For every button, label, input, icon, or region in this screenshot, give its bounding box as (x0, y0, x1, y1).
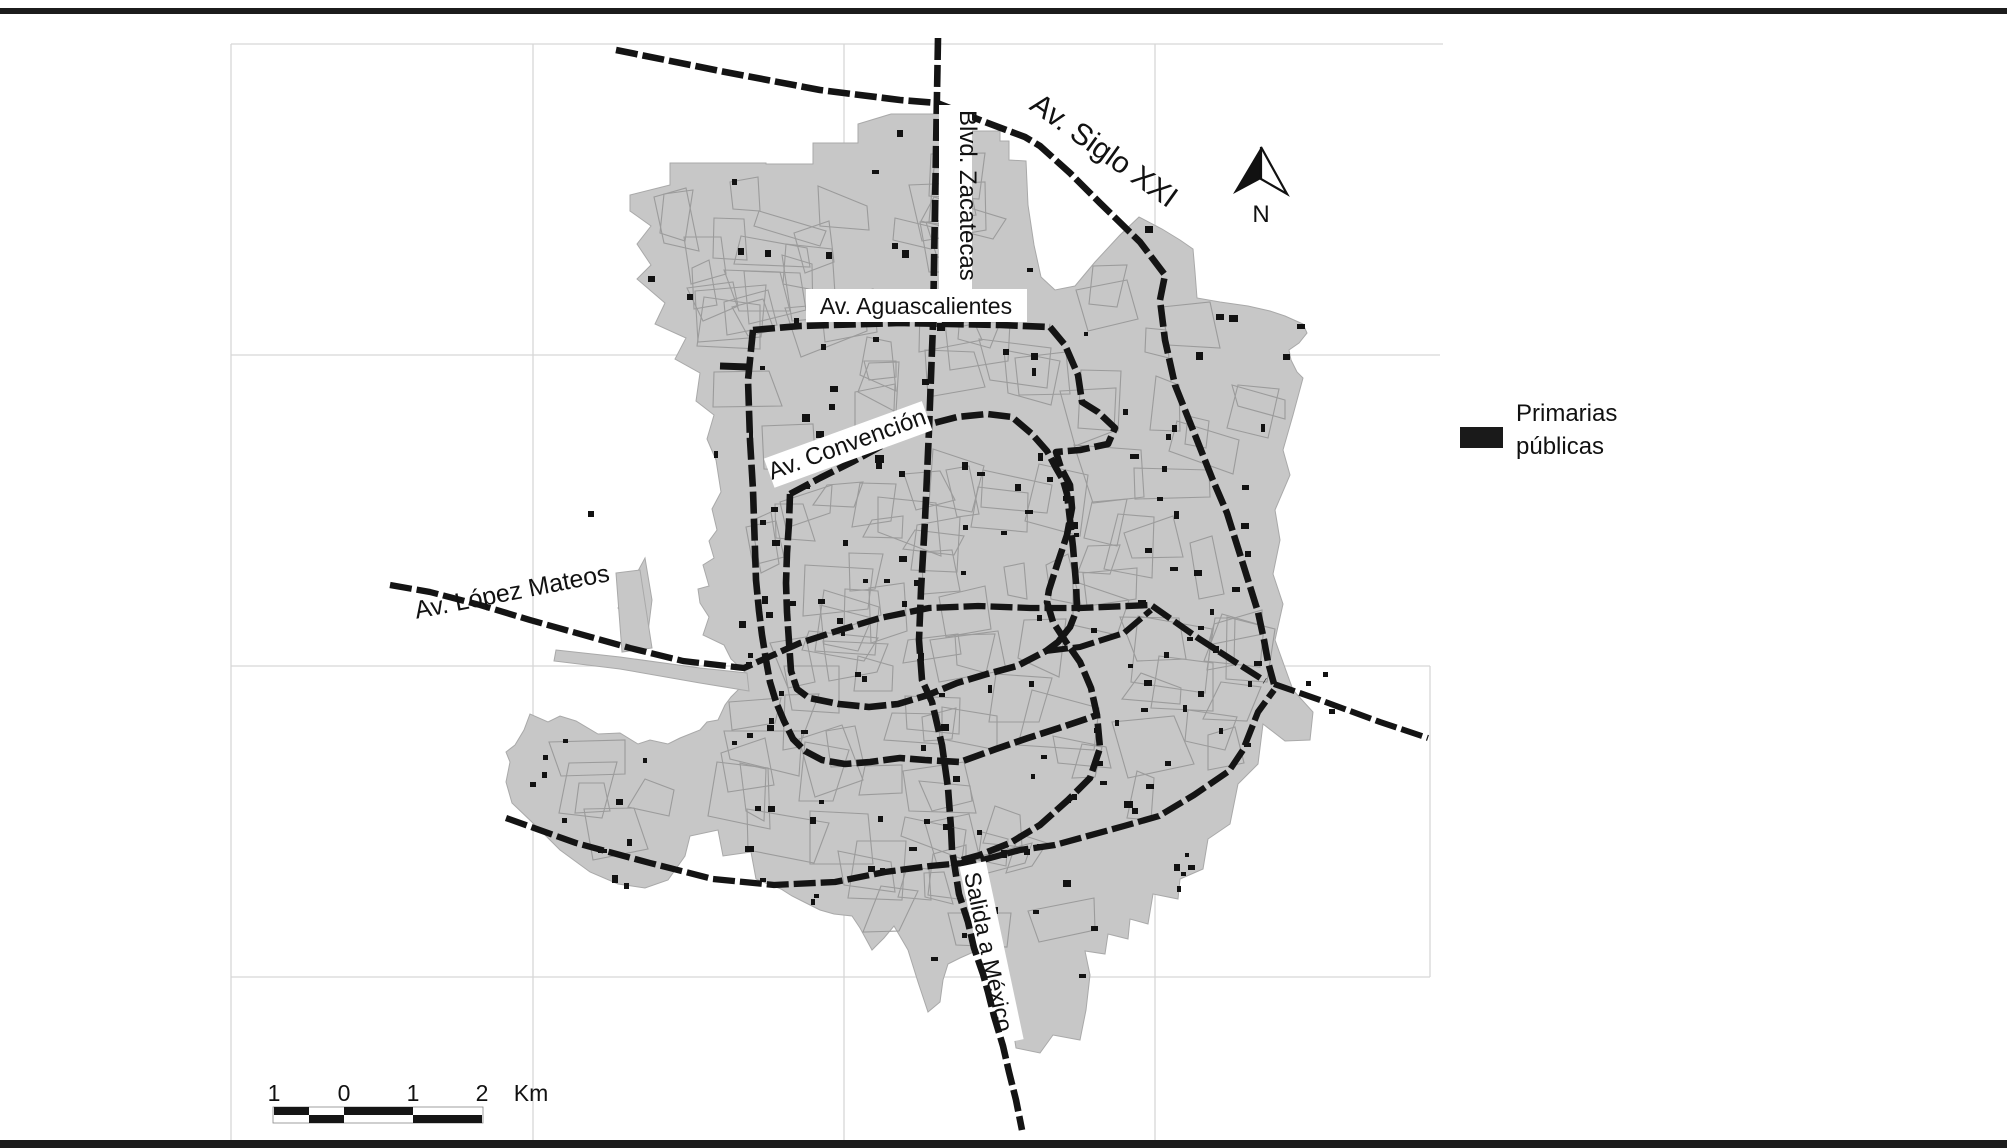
svg-text:Primarias: Primarias (1516, 400, 1617, 427)
svg-text:Blvd. Zacatecas: Blvd. Zacatecas (954, 110, 981, 281)
svg-text:públicas: públicas (1516, 433, 1604, 460)
svg-text:1: 1 (407, 1080, 420, 1106)
svg-text:N: N (1252, 201, 1269, 228)
svg-text:2: 2 (476, 1080, 489, 1106)
svg-text:1: 1 (268, 1080, 281, 1106)
svg-text:Av. Aguascalientes: Av. Aguascalientes (820, 293, 1012, 319)
svg-text:Km: Km (514, 1080, 549, 1106)
svg-text:0: 0 (338, 1080, 351, 1106)
